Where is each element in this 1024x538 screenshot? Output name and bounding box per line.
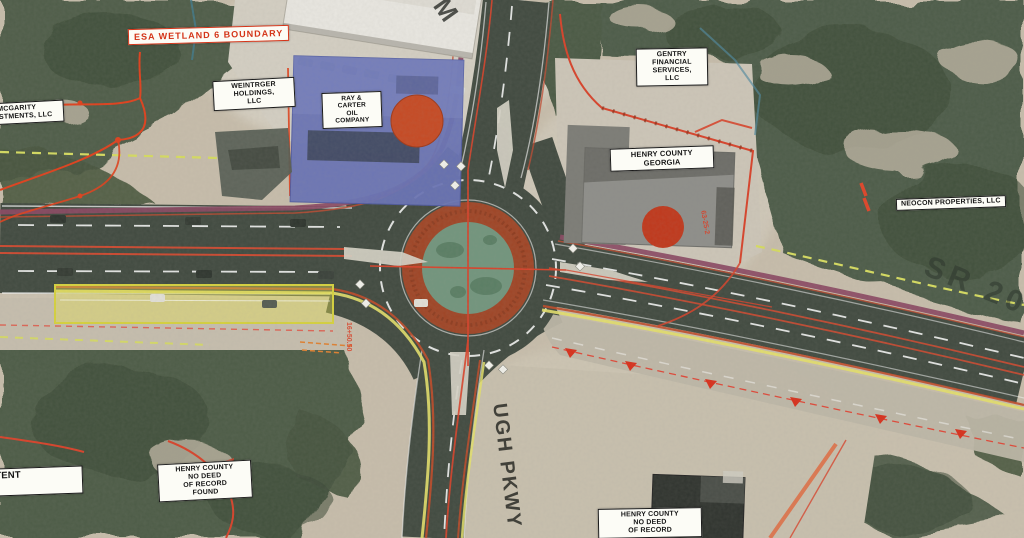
label-line: NEOCON PROPERTIES, LLC <box>901 197 1001 209</box>
parcel-label-henry-no-deed-south: HENRY COUNTY NO DEED OF RECORD <box>598 507 703 538</box>
label-line: OF RECORD <box>602 526 698 536</box>
aerial-site-plan: MCGARITY INVESTMENTS, LLC ESA WETLAND 6 … <box>0 0 1024 538</box>
parcel-label-henry-no-deed-west: HENRY COUNTY NO DEED OF RECORD FOUND <box>157 460 253 503</box>
label-line: ESA WETLAND 6 BOUNDARY <box>134 28 284 42</box>
stream-label-intermittent: INTERMITTENT STREAM B <box>0 466 83 499</box>
parcel-label-gentry: GENTRY FINANCIAL SERVICES, LLC <box>636 47 709 86</box>
parcel-label-ray-carter: RAY & CARTER OIL COMPANY <box>321 91 382 129</box>
parcel-label-henry-county-georgia: HENRY COUNTY GEORGIA <box>610 145 715 172</box>
label-line: COMPANY <box>326 116 378 125</box>
label-line: INVESTMENTS, LLC <box>0 111 60 124</box>
station-annotation: 16+50.50 <box>345 322 352 351</box>
parcel-label-weintrger: WEINTRGER HOLDINGS, LLC <box>212 77 295 111</box>
label-line: LLC <box>640 75 704 84</box>
